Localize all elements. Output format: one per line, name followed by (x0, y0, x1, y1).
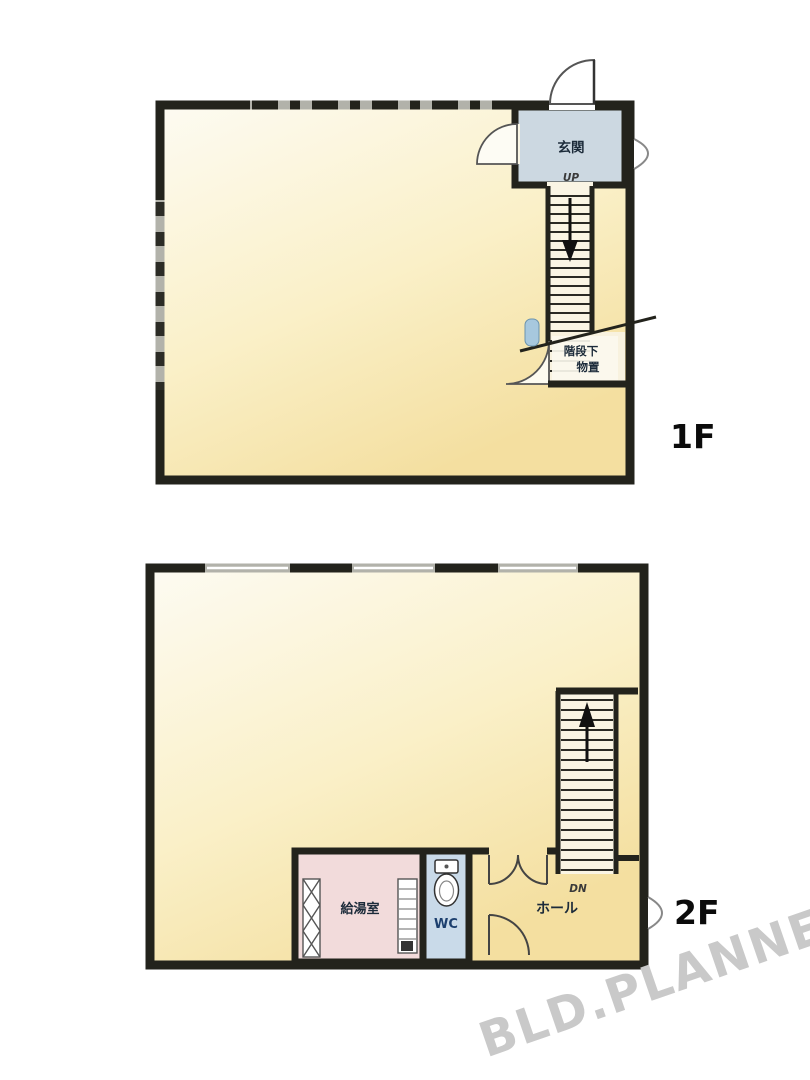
kitchenette-shelf (303, 879, 320, 957)
entrance-label: 玄関 (558, 139, 585, 156)
floor-plan-1f: 階段下 物置 玄関 UP 1F (156, 60, 716, 480)
window-top-1f (250, 101, 515, 110)
toilet-icon (435, 860, 459, 906)
entrance-door-arc (549, 60, 595, 110)
dn-label: DN (569, 883, 587, 895)
floor-label-1f: 1F (670, 417, 716, 456)
kitchenette-label: 給湯室 (340, 901, 379, 917)
hall-label: ホール (536, 901, 578, 917)
exterior-vent-tag-2f (648, 897, 662, 929)
storage-label-line1: 階段下 (564, 344, 599, 358)
up-label: UP (563, 172, 580, 184)
storage-label-line2: 物置 (577, 360, 600, 374)
floorplan-canvas: 階段下 物置 玄関 UP 1F (0, 0, 810, 1080)
window-left-1f (156, 200, 165, 390)
wc-label: WC (434, 917, 458, 932)
kitchenette-counter (398, 879, 417, 953)
floor-label-2f: 2F (674, 893, 720, 932)
entrance-side-door-arc (634, 139, 648, 169)
floor-plan-2f: 給湯室 WC ホール DN 2F (150, 564, 720, 966)
water-heater-fixture (525, 319, 539, 346)
windows-top-2f (205, 564, 578, 573)
